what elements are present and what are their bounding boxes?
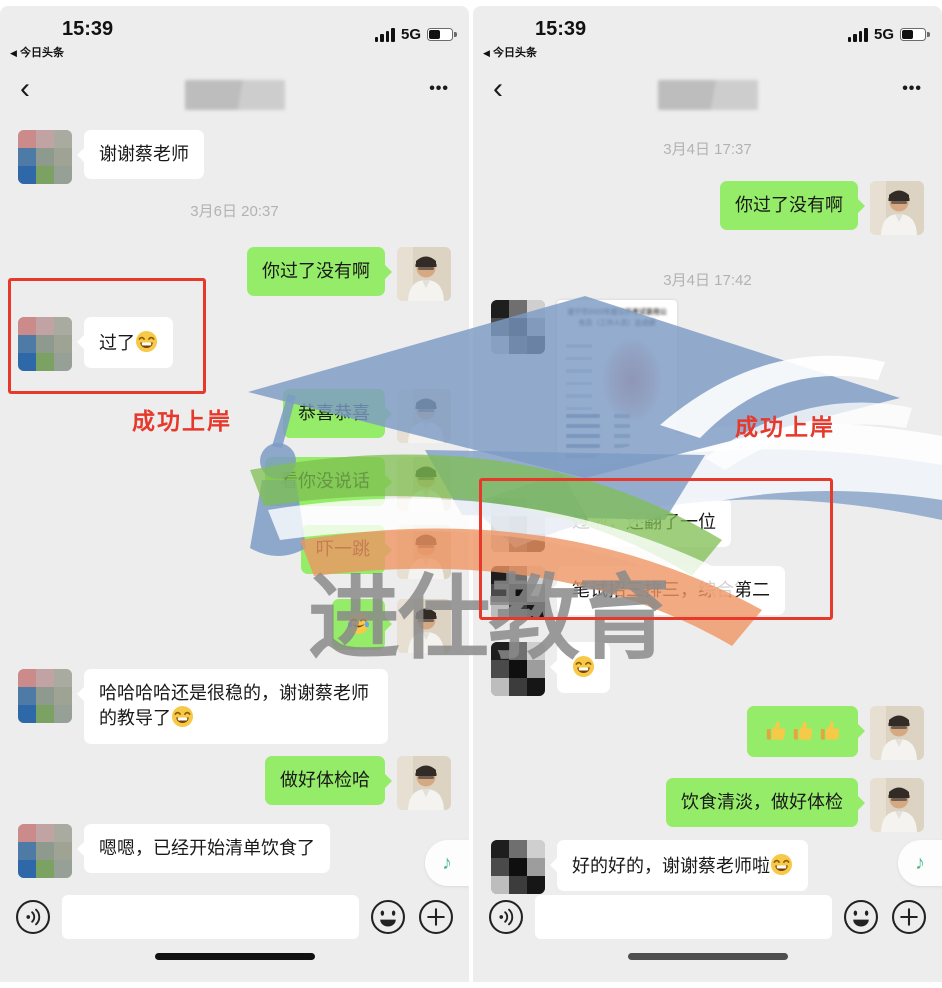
message-row: 做好体检哈 [18, 756, 451, 810]
avatar[interactable] [491, 642, 545, 696]
received-message[interactable]: 谢谢蔡老师 [84, 130, 204, 179]
status-bar: 15:39 ◀ 今日头条 5G [473, 6, 942, 66]
avatar[interactable] [870, 778, 924, 832]
signal-icon [375, 28, 395, 42]
contact-name-redacted [658, 80, 758, 110]
chat-history: 谢谢蔡老师 3月6日 20:37 你过了没有啊 过了 恭喜恭喜 看你没说话 吓一… [0, 130, 469, 878]
avatar[interactable] [397, 247, 451, 301]
received-message[interactable]: 哈哈哈哈还是很稳的，谢谢蔡老师的教导了 [84, 669, 388, 744]
received-message[interactable]: 嗯嗯，已经开始清单饮食了 [84, 824, 330, 873]
redacted-score-rows [566, 414, 630, 464]
highlight-box [479, 478, 833, 620]
highlight-box [8, 278, 206, 394]
sent-message[interactable]: 你过了没有啊 [720, 181, 858, 230]
thumbs-up-emoji [764, 719, 787, 742]
clock-time: 15:39 [535, 18, 586, 41]
timestamp: 3月4日 17:37 [491, 138, 924, 159]
back-to-app-link[interactable]: ◀ 今日头条 [483, 44, 537, 60]
score-report-title: 遂宁市2023年度公开考试录用公务员（工作人员）总成绩 [557, 300, 677, 329]
avatar[interactable] [18, 824, 72, 878]
sent-message[interactable]: 饮食清淡，做好体检 [666, 778, 858, 827]
sent-message[interactable]: 看你没说话 [265, 457, 385, 506]
avatar[interactable] [397, 756, 451, 810]
chat-nav-bar: ‹ ••• [473, 66, 942, 120]
message-row [491, 706, 924, 760]
avatar[interactable] [397, 599, 451, 653]
message-input-bar [473, 890, 942, 944]
message-row [18, 599, 451, 653]
message-row: 嗯嗯，已经开始清单饮食了 [18, 824, 451, 878]
message-input-bar [0, 890, 469, 944]
plus-icon[interactable] [890, 898, 928, 936]
avatar[interactable] [18, 130, 72, 184]
beaming-face-emoji [171, 705, 194, 728]
avatar[interactable] [18, 669, 72, 723]
joy-tears-emoji [347, 612, 370, 635]
voice-input-icon[interactable] [487, 898, 525, 936]
message-row: 恭喜恭喜 [18, 389, 451, 443]
message-row: 哈哈哈哈还是很稳的，谢谢蔡老师的教导了 [18, 669, 451, 744]
two-wechat-screenshots: 15:39 ◀ 今日头条 5G ‹ ••• 谢谢蔡老师 3月6日 20:37 你… [0, 0, 942, 988]
received-emoji-message[interactable] [557, 642, 610, 693]
status-bar: 15:39 ◀ 今日头条 5G [0, 6, 469, 66]
right-screenshot: 15:39 ◀ 今日头条 5G ‹ ••• 3月4日 17:37 你过了没有啊 … [473, 6, 942, 982]
more-options-icon[interactable]: ••• [429, 80, 449, 98]
clock-time: 15:39 [62, 18, 113, 41]
avatar[interactable] [870, 181, 924, 235]
message-row: 遂宁市2023年度公开考试录用公务员（工作人员）总成绩 [491, 300, 924, 474]
back-chevron-icon[interactable]: ‹ [20, 72, 30, 106]
avatar[interactable] [870, 706, 924, 760]
more-options-icon[interactable]: ••• [902, 80, 922, 98]
timestamp: 3月6日 20:37 [18, 200, 451, 221]
avatar[interactable] [397, 389, 451, 443]
timestamp: 3月4日 17:42 [491, 269, 924, 290]
emoji-picker-icon[interactable] [369, 898, 407, 936]
message-row: 看你没说话 [18, 457, 451, 511]
beaming-face-emoji [770, 853, 793, 876]
redacted-form-rows [566, 344, 592, 419]
sent-message[interactable]: 做好体检哈 [265, 756, 385, 805]
sent-message[interactable]: 吓一跳 [301, 525, 385, 574]
home-indicator[interactable] [628, 953, 788, 960]
home-indicator[interactable] [155, 953, 315, 960]
avatar[interactable] [491, 300, 545, 354]
left-screenshot: 15:39 ◀ 今日头条 5G ‹ ••• 谢谢蔡老师 3月6日 20:37 你… [0, 6, 469, 982]
emoji-picker-icon[interactable] [842, 898, 880, 936]
contact-name-redacted [185, 80, 285, 110]
sent-emoji-message[interactable] [747, 706, 858, 757]
plus-icon[interactable] [417, 898, 455, 936]
battery-icon [900, 28, 926, 41]
redacted-score-block [601, 336, 663, 424]
message-row: 好的好的，谢谢蔡老师啦 [491, 840, 924, 894]
network-type: 5G [401, 26, 421, 43]
success-label: 成功上岸 [132, 402, 232, 436]
battery-icon [427, 28, 453, 41]
back-to-app-link[interactable]: ◀ 今日头条 [10, 44, 64, 60]
received-message[interactable]: 好的好的，谢谢蔡老师啦 [557, 840, 808, 891]
network-type: 5G [874, 26, 894, 43]
sent-emoji-message[interactable] [332, 599, 385, 650]
score-report-image[interactable]: 遂宁市2023年度公开考试录用公务员（工作人员）总成绩 [557, 300, 677, 474]
music-note-icon[interactable]: ♪ [898, 840, 942, 886]
avatar[interactable] [491, 840, 545, 894]
message-row: 谢谢蔡老师 [18, 130, 451, 184]
message-row: 你过了没有啊 [491, 181, 924, 235]
success-label: 成功上岸 [735, 408, 835, 442]
message-row: 饮食清淡，做好体检 [491, 778, 924, 832]
signal-icon [848, 28, 868, 42]
message-input[interactable] [62, 895, 359, 939]
chat-nav-bar: ‹ ••• [0, 66, 469, 120]
thumbs-up-emoji [818, 719, 841, 742]
sent-message[interactable]: 你过了没有啊 [247, 247, 385, 296]
message-row [491, 642, 924, 696]
back-to-app-icon: ◀ [483, 48, 490, 58]
thumbs-up-emoji [791, 719, 814, 742]
avatar[interactable] [397, 525, 451, 579]
avatar[interactable] [397, 457, 451, 511]
back-to-app-icon: ◀ [10, 48, 17, 58]
voice-input-icon[interactable] [14, 898, 52, 936]
back-chevron-icon[interactable]: ‹ [493, 72, 503, 106]
music-note-icon[interactable]: ♪ [425, 840, 469, 886]
message-row: 吓一跳 [18, 525, 451, 579]
beaming-face-emoji [572, 655, 595, 678]
sent-message[interactable]: 恭喜恭喜 [283, 389, 385, 438]
message-input[interactable] [535, 895, 832, 939]
